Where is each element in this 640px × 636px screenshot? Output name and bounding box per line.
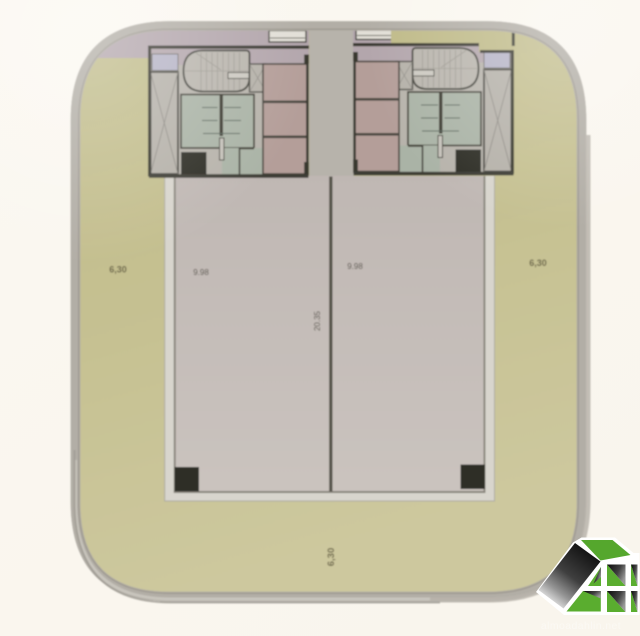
svg-text:almoadahlin.net: almoadahlin.net (541, 620, 621, 632)
